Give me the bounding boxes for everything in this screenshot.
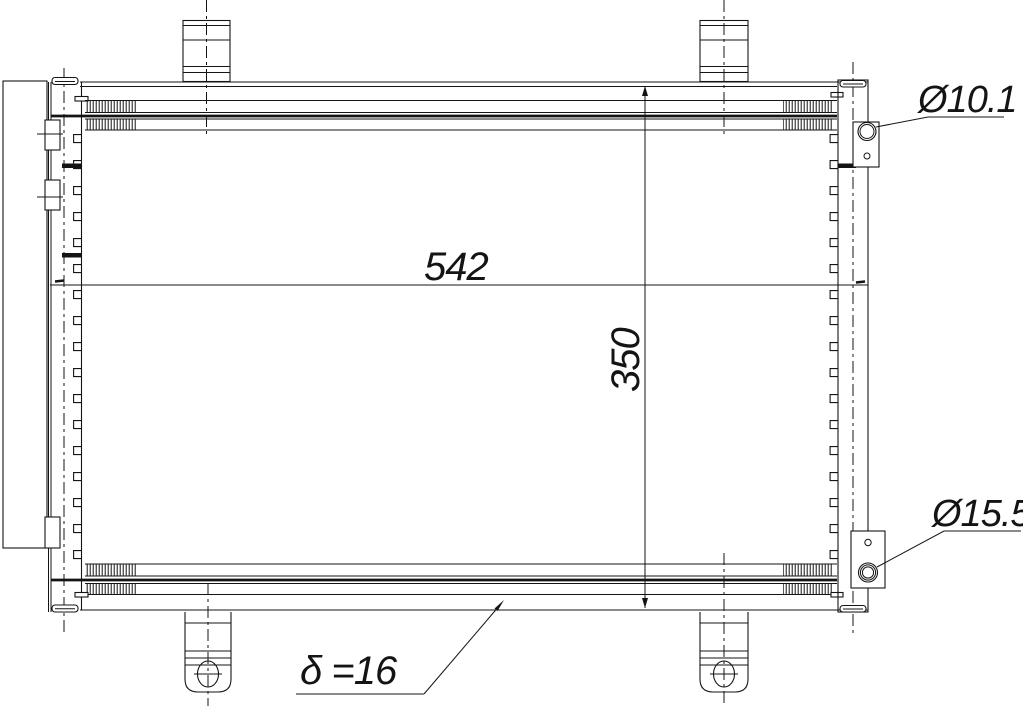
receiver-drier-tank	[3, 81, 63, 612]
fin-hatch-top-left-1	[86, 101, 136, 112]
fin-hatch-bottom-left-2	[86, 584, 136, 594]
right-comb-teeth	[830, 134, 839, 566]
side-plate-tab-bottom-left	[75, 593, 88, 598]
width-dimension-label: 542	[424, 245, 488, 289]
left-weld-mark-lower	[62, 253, 82, 258]
fin-hatch-bottom-right-2	[783, 584, 832, 594]
condenser-core	[51, 82, 868, 610]
left-weld-mark-upper	[62, 164, 82, 169]
thickness-label: δ =16	[300, 649, 398, 693]
width-dim-tick-right	[856, 282, 865, 283]
height-dim-arrow-bottom	[642, 598, 648, 608]
technical-drawing-canvas: 542 350 Ø10.1 Ø15.5 δ =16	[0, 0, 1023, 706]
height-dimension-label: 350	[604, 328, 648, 392]
bottom-port-diameter-label: Ø15.5	[930, 493, 1023, 535]
left-comb-teeth	[73, 134, 82, 566]
fin-hatch-bottom-left-1	[86, 565, 136, 576]
receiver-drier-body	[3, 81, 47, 548]
fin-hatch-top-right-2	[783, 120, 832, 131]
drier-mount-block	[45, 120, 60, 150]
top-port-diameter-label: Ø10.1	[916, 79, 1017, 121]
drier-mount-block	[45, 517, 60, 548]
left-header	[52, 68, 82, 634]
fin-hatch-bottom-right-1	[783, 565, 832, 576]
side-plate-tab-top-right	[831, 93, 843, 98]
bottom-port-fitting	[851, 531, 885, 588]
thickness-leader-arrow	[495, 600, 505, 611]
bottom-port-leader-line	[877, 531, 1021, 567]
height-dim-arrow-top	[642, 86, 648, 96]
fin-hatch-top-right-1	[783, 101, 832, 112]
dimensions: 542 350 Ø10.1 Ø15.5 δ =16	[50, 79, 1023, 694]
bottom-bracket-left	[185, 583, 231, 706]
condenser-drawing: 542 350 Ø10.1 Ø15.5 δ =16	[0, 0, 1023, 706]
fin-hatch-top-left-2	[86, 120, 136, 131]
top-port-fitting	[853, 122, 879, 167]
drier-mount-block	[45, 180, 60, 210]
width-dim-tick-left	[55, 281, 64, 282]
thickness-leader-line	[424, 605, 500, 694]
side-plate-tab-bottom-right	[831, 593, 843, 598]
